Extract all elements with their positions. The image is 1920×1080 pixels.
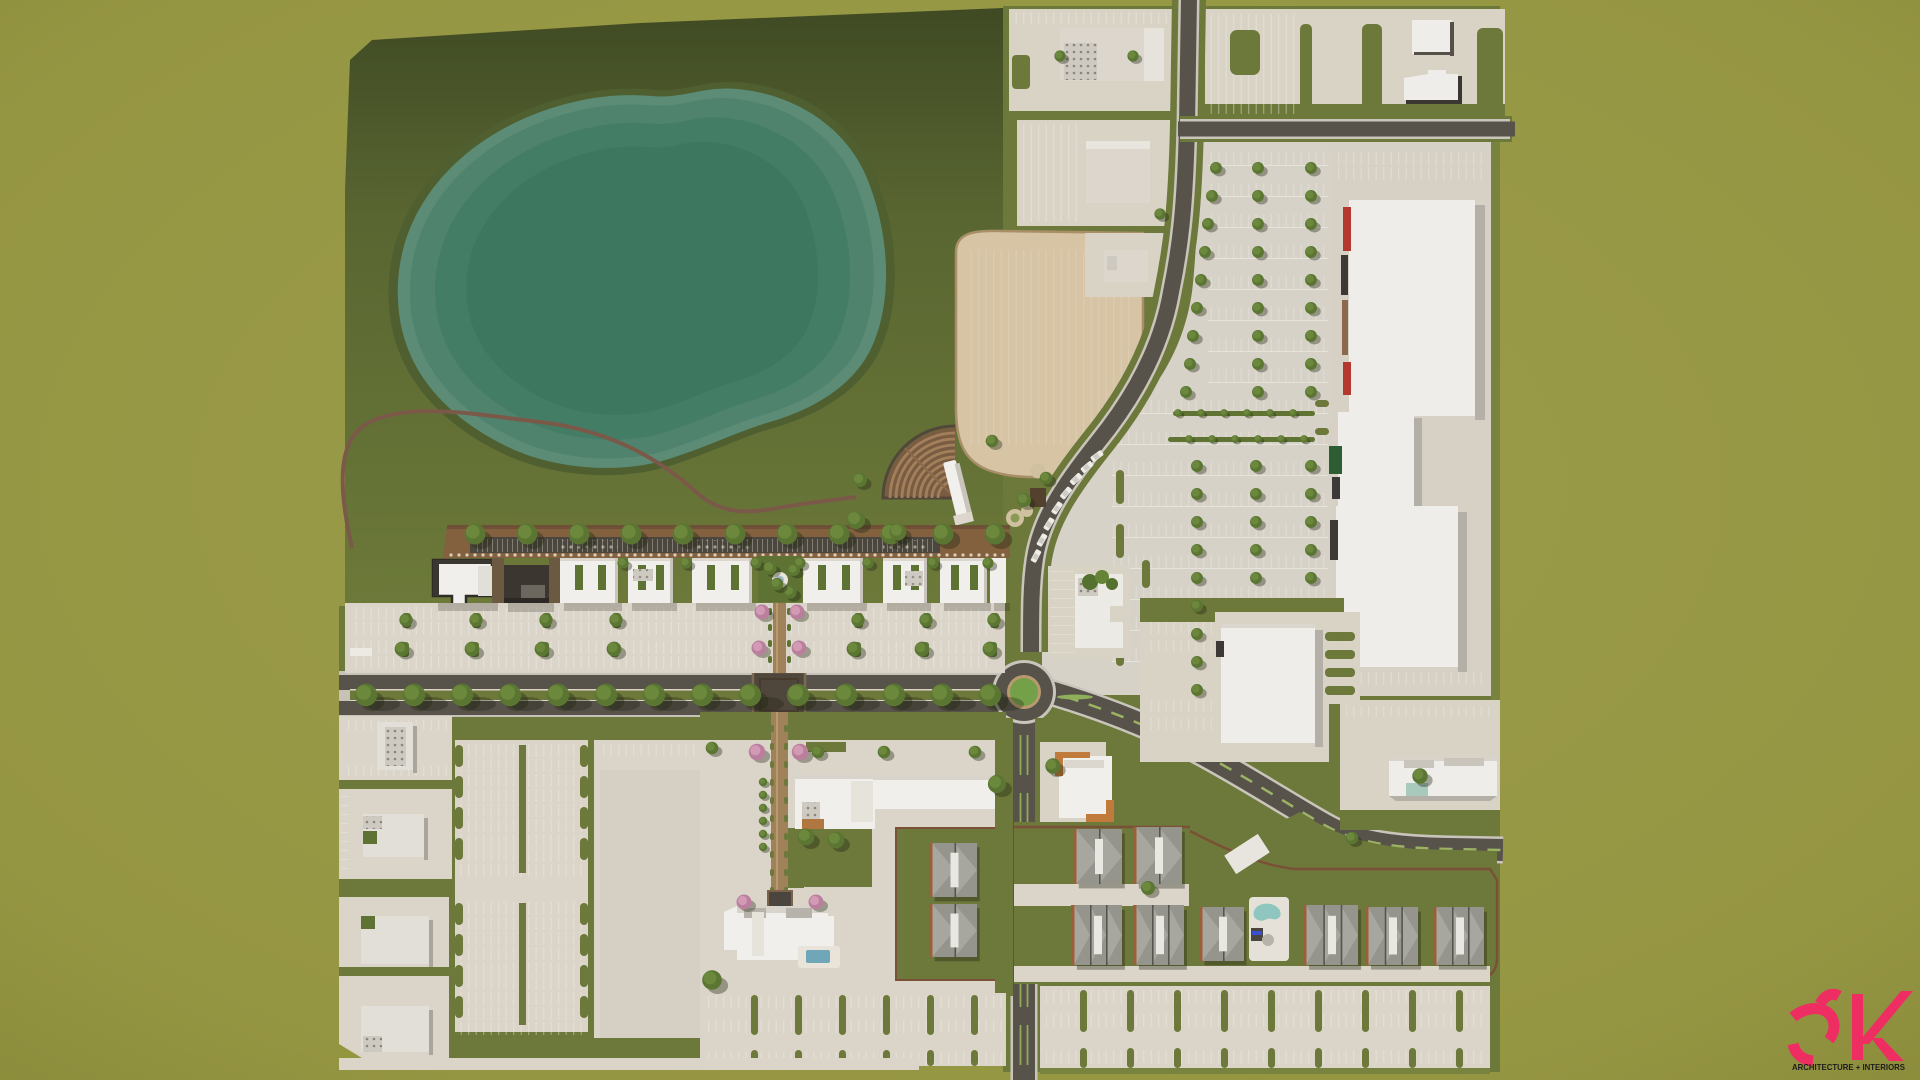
svg-text:ARCHITECTURE + INTERIORS: ARCHITECTURE + INTERIORS xyxy=(1792,1062,1905,1072)
